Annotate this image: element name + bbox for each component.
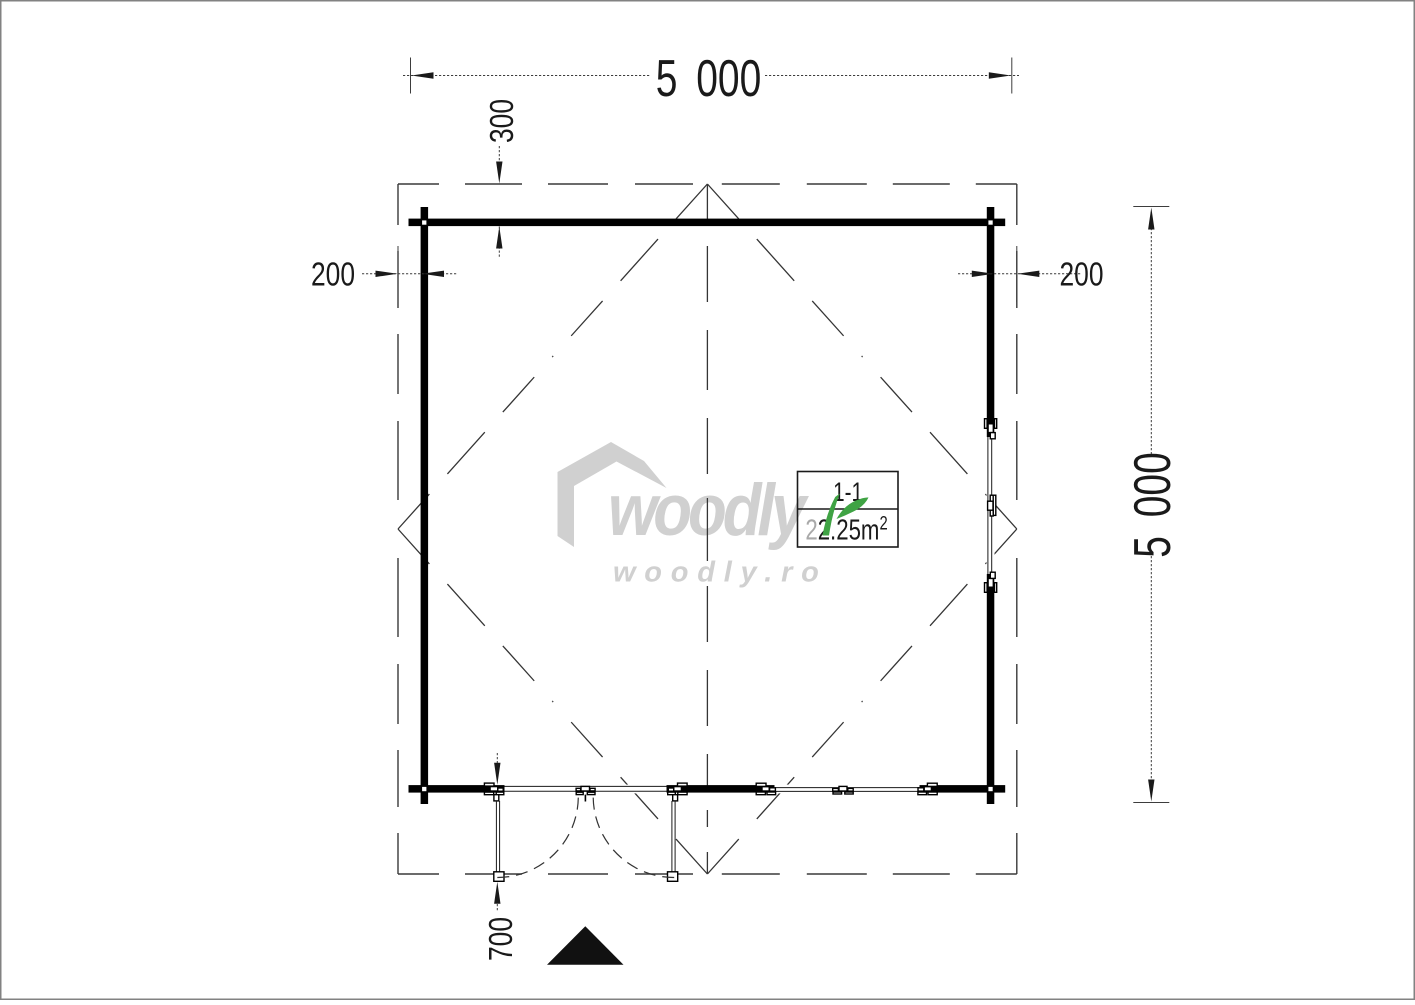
- svg-text:woodly.ro: woodly.ro: [613, 557, 828, 589]
- svg-text:300: 300: [484, 99, 520, 143]
- svg-text:200: 200: [1059, 257, 1103, 293]
- svg-text:700: 700: [483, 917, 519, 961]
- svg-text:woodly: woodly: [608, 470, 809, 551]
- svg-text:5 000: 5 000: [656, 48, 762, 107]
- svg-text:5 000: 5 000: [1122, 452, 1181, 558]
- svg-text:200: 200: [311, 257, 355, 293]
- svg-text:22.25m2: 22.25m2: [805, 513, 887, 546]
